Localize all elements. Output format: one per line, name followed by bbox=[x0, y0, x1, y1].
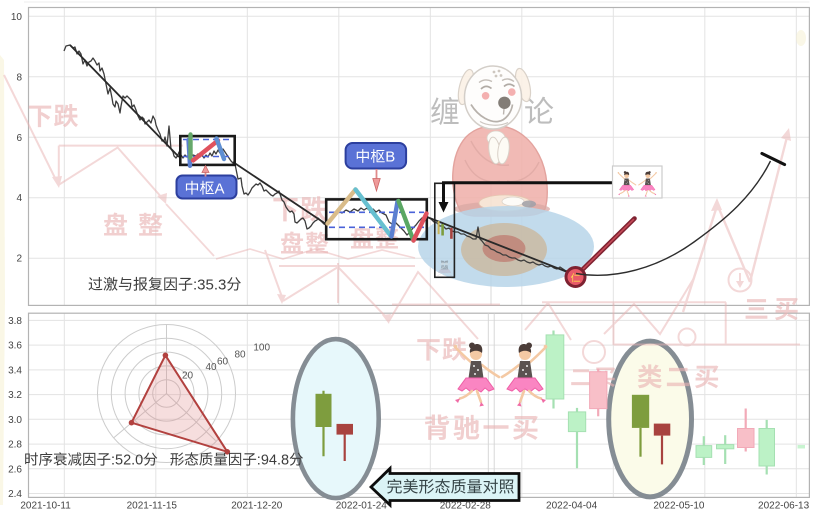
svg-text:2022-02-28: 2022-02-28 bbox=[440, 501, 492, 512]
svg-text:2022-06-13: 2022-06-13 bbox=[758, 501, 810, 512]
svg-text::52.0: :52.0 bbox=[111, 453, 143, 469]
svg-text:3.2: 3.2 bbox=[8, 390, 22, 401]
svg-text:3.0: 3.0 bbox=[8, 415, 22, 426]
svg-text::35.3: :35.3 bbox=[193, 277, 226, 294]
svg-text:6: 6 bbox=[16, 133, 22, 144]
svg-text:3.4: 3.4 bbox=[8, 365, 22, 376]
svg-text:8: 8 bbox=[16, 72, 22, 83]
svg-text:10: 10 bbox=[11, 12, 23, 23]
svg-text:2.6: 2.6 bbox=[8, 464, 22, 475]
svg-text:B: B bbox=[385, 149, 395, 166]
svg-text:2.4: 2.4 bbox=[8, 489, 22, 500]
svg-text:2021-11-15: 2021-11-15 bbox=[127, 501, 178, 512]
svg-text:80: 80 bbox=[234, 350, 246, 361]
svg-text:4: 4 bbox=[16, 193, 22, 204]
svg-text:2: 2 bbox=[16, 254, 22, 265]
svg-text:3.6: 3.6 bbox=[8, 341, 22, 352]
svg-text:2022-05-10: 2022-05-10 bbox=[653, 501, 705, 512]
svg-text:40: 40 bbox=[205, 362, 217, 373]
svg-text:20: 20 bbox=[182, 371, 194, 382]
svg-text:2022-04-04: 2022-04-04 bbox=[546, 501, 598, 512]
svg-text:2021-12-20: 2021-12-20 bbox=[231, 501, 283, 512]
svg-text:3.8: 3.8 bbox=[8, 316, 22, 327]
svg-text:100: 100 bbox=[253, 343, 270, 354]
svg-text:2021-10-11: 2021-10-11 bbox=[20, 501, 71, 512]
svg-text:2022-01-24: 2022-01-24 bbox=[336, 501, 388, 512]
svg-text::94.8: :94.8 bbox=[257, 453, 289, 469]
svg-text:60: 60 bbox=[217, 357, 229, 368]
svg-text:A: A bbox=[215, 180, 225, 197]
svg-text:2.8: 2.8 bbox=[8, 440, 22, 451]
